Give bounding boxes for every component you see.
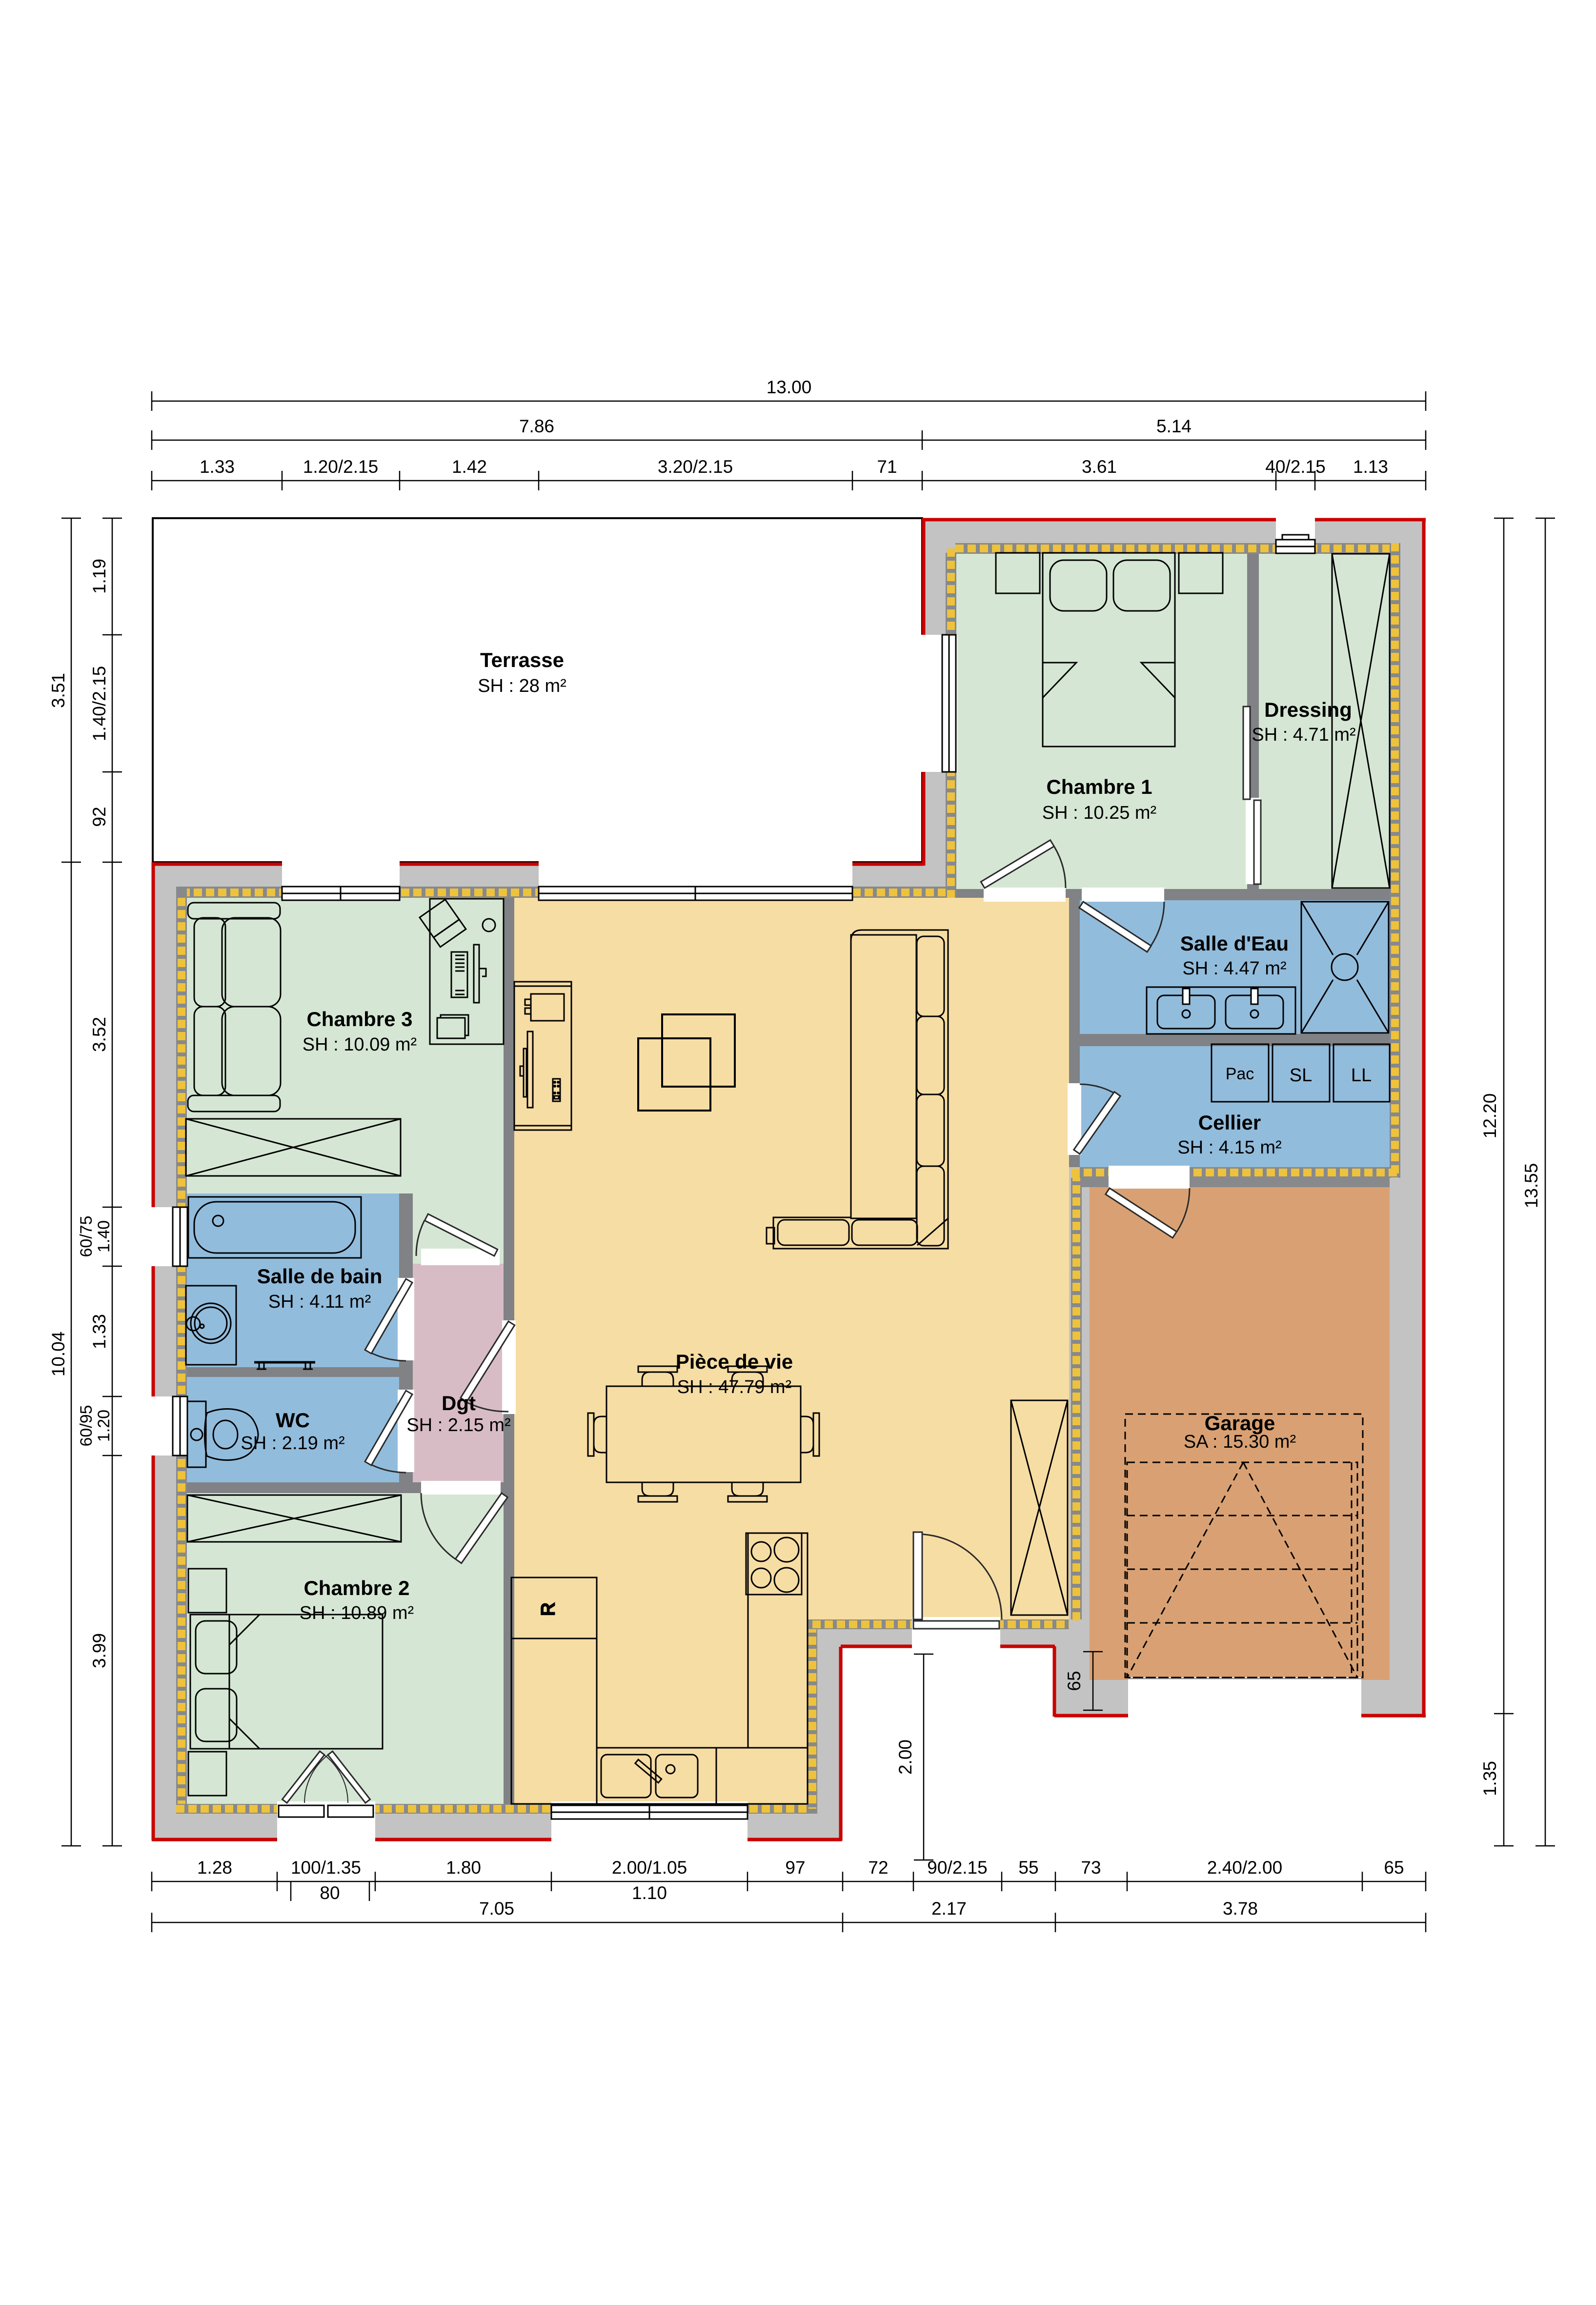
svg-text:Terrasse: Terrasse	[480, 648, 564, 671]
svg-text:SH : 47.79 m²: SH : 47.79 m²	[677, 1377, 791, 1397]
svg-text:60/95: 60/95	[77, 1405, 96, 1446]
svg-text:SH : 28 m²: SH : 28 m²	[478, 676, 566, 696]
svg-text:3.78: 3.78	[1223, 1899, 1258, 1919]
svg-text:40/2.15: 40/2.15	[1265, 457, 1325, 477]
svg-text:71: 71	[877, 457, 897, 477]
svg-text:7.86: 7.86	[519, 416, 554, 436]
svg-text:SH : 4.15 m²: SH : 4.15 m²	[1177, 1137, 1281, 1158]
svg-text:1.40/2.15: 1.40/2.15	[89, 666, 109, 741]
svg-text:R: R	[538, 1602, 559, 1616]
svg-text:SL: SL	[1290, 1065, 1312, 1086]
svg-text:SH : 2.19 m²: SH : 2.19 m²	[241, 1433, 344, 1454]
svg-text:LL: LL	[1351, 1065, 1372, 1086]
svg-text:Salle de bain: Salle de bain	[257, 1265, 383, 1288]
svg-text:1.10: 1.10	[632, 1883, 667, 1903]
svg-text:100/1.35: 100/1.35	[291, 1858, 361, 1878]
svg-text:1.33: 1.33	[89, 1314, 109, 1349]
svg-text:WC: WC	[276, 1409, 310, 1432]
svg-text:3.61: 3.61	[1082, 457, 1117, 477]
svg-text:1.20/2.15: 1.20/2.15	[303, 457, 378, 477]
svg-text:90/2.15: 90/2.15	[927, 1858, 987, 1878]
svg-text:72: 72	[868, 1858, 888, 1878]
svg-text:Dgt: Dgt	[442, 1392, 476, 1415]
svg-text:65: 65	[1384, 1858, 1404, 1878]
svg-text:1.33: 1.33	[200, 457, 235, 477]
svg-text:SH : 4.71 m²: SH : 4.71 m²	[1252, 725, 1355, 745]
svg-text:1.35: 1.35	[1480, 1761, 1500, 1796]
svg-text:5.14: 5.14	[1156, 416, 1192, 436]
svg-text:Dressing: Dressing	[1264, 698, 1352, 721]
svg-text:Cellier: Cellier	[1198, 1111, 1261, 1134]
svg-text:SH : 4.11 m²: SH : 4.11 m²	[268, 1292, 371, 1312]
svg-text:Chambre 2: Chambre 2	[303, 1577, 409, 1599]
svg-text:97: 97	[785, 1858, 805, 1878]
svg-text:2.40/2.00: 2.40/2.00	[1207, 1858, 1282, 1878]
svg-text:12.20: 12.20	[1480, 1093, 1500, 1139]
svg-text:80: 80	[320, 1883, 340, 1903]
svg-text:3.99: 3.99	[89, 1633, 109, 1668]
svg-text:2.17: 2.17	[931, 1899, 967, 1919]
svg-text:Salle d'Eau: Salle d'Eau	[1180, 932, 1289, 955]
svg-text:3.20/2.15: 3.20/2.15	[658, 457, 733, 477]
svg-text:Chambre 3: Chambre 3	[306, 1008, 412, 1031]
svg-text:3.52: 3.52	[89, 1017, 109, 1052]
svg-text:2.00: 2.00	[895, 1739, 915, 1775]
svg-text:92: 92	[89, 807, 109, 827]
svg-text:Garage: Garage	[1205, 1412, 1275, 1435]
svg-text:SH : 10.09 m²: SH : 10.09 m²	[303, 1034, 417, 1055]
svg-text:SH : 2.15 m²: SH : 2.15 m²	[406, 1415, 510, 1436]
svg-text:SH : 10.89 m²: SH : 10.89 m²	[300, 1603, 414, 1623]
svg-text:SH : 4.47 m²: SH : 4.47 m²	[1182, 958, 1286, 979]
svg-text:13.00: 13.00	[767, 377, 812, 397]
svg-text:1.28: 1.28	[197, 1858, 232, 1878]
svg-text:Pièce de vie: Pièce de vie	[676, 1350, 793, 1373]
svg-text:SH : 10.25 m²: SH : 10.25 m²	[1042, 803, 1156, 823]
svg-text:73: 73	[1081, 1858, 1101, 1878]
svg-text:1.42: 1.42	[452, 457, 487, 477]
svg-text:1.13: 1.13	[1353, 457, 1388, 477]
svg-text:13.55: 13.55	[1521, 1163, 1541, 1209]
svg-text:55: 55	[1018, 1858, 1038, 1878]
svg-text:7.05: 7.05	[479, 1899, 514, 1919]
svg-text:3.51: 3.51	[48, 673, 68, 708]
svg-text:1.80: 1.80	[446, 1858, 481, 1878]
svg-text:1.19: 1.19	[89, 559, 109, 594]
svg-text:Pac: Pac	[1226, 1065, 1254, 1083]
svg-text:2.00/1.05: 2.00/1.05	[612, 1858, 687, 1878]
svg-text:60/75: 60/75	[77, 1215, 96, 1257]
svg-text:SA : 15.30 m²: SA : 15.30 m²	[1184, 1432, 1296, 1452]
svg-text:Chambre 1: Chambre 1	[1046, 775, 1152, 798]
svg-text:1.20: 1.20	[95, 1410, 113, 1442]
svg-text:1.40: 1.40	[95, 1220, 113, 1253]
svg-text:65: 65	[1064, 1671, 1084, 1691]
svg-text:10.04: 10.04	[48, 1332, 68, 1377]
